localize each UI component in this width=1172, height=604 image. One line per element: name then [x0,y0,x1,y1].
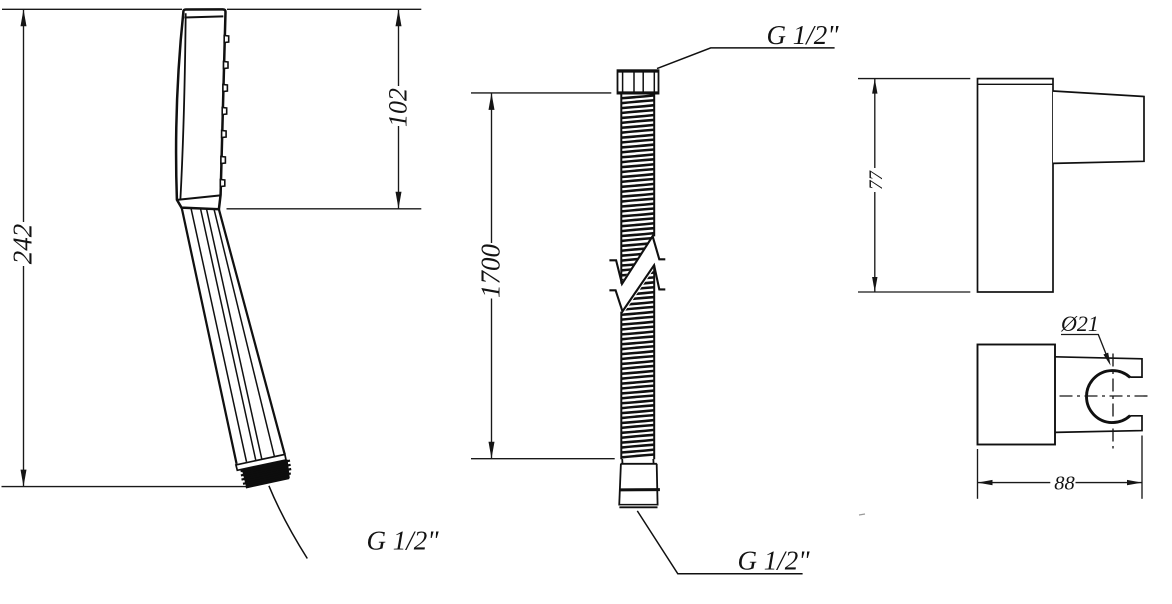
svg-text:G 1/2": G 1/2" [737,545,810,575]
svg-text:G 1/2": G 1/2" [766,20,839,50]
svg-text:1700: 1700 [476,244,506,299]
svg-text:Ø21: Ø21 [1060,311,1099,336]
svg-text:G 1/2": G 1/2" [366,526,439,556]
svg-text:102: 102 [384,88,413,127]
svg-text:242: 242 [8,224,38,265]
svg-text:77: 77 [866,170,887,191]
svg-text:88: 88 [1054,472,1075,494]
